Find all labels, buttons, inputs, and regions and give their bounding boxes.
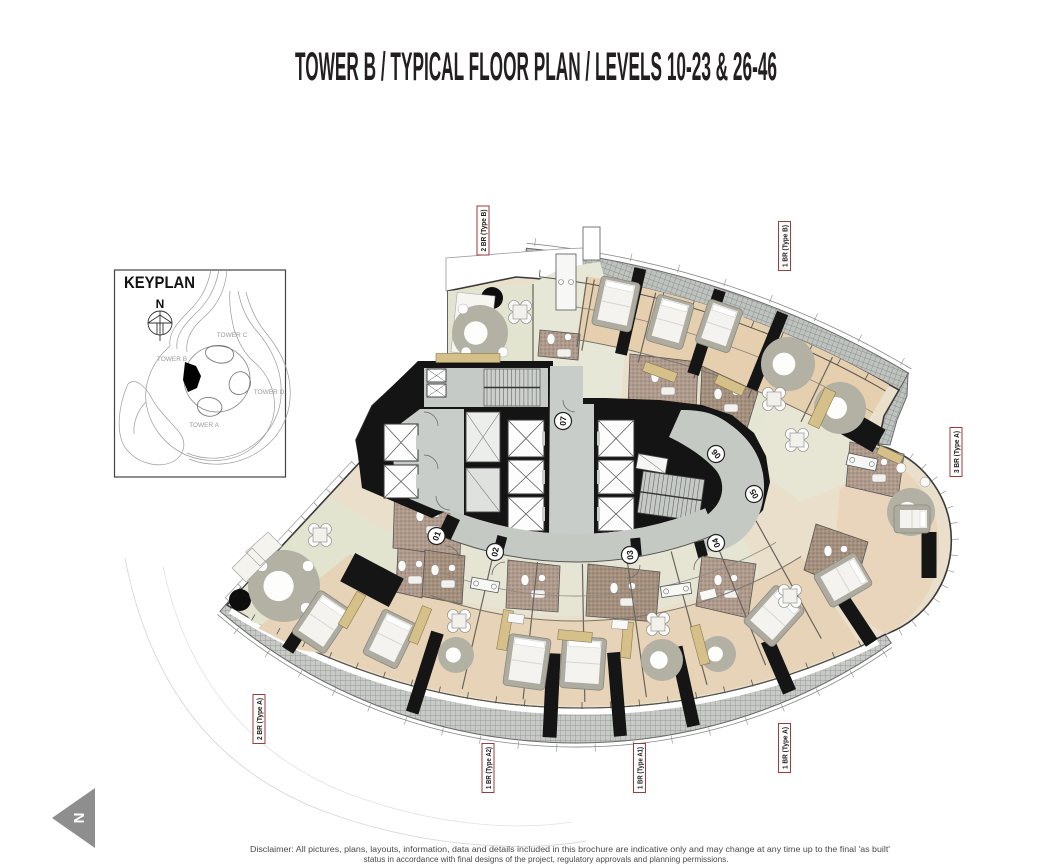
svg-text:Disclaimer: All pictures, plan: Disclaimer: All pictures, plans, layouts…	[250, 845, 891, 854]
svg-text:2 BR (Type B): 2 BR (Type B)	[481, 210, 488, 252]
svg-text:3 BR (Type A): 3 BR (Type A)	[954, 431, 961, 473]
svg-text:1 BR (Type A1): 1 BR (Type A1)	[637, 747, 644, 789]
svg-text:TOWER A: TOWER A	[189, 422, 220, 429]
svg-text:07: 07	[558, 416, 569, 427]
svg-text:KEYPLAN: KEYPLAN	[124, 273, 195, 292]
svg-text:1 BR (Type B): 1 BR (Type B)	[782, 225, 789, 267]
svg-text:1 BR (Type A2): 1 BR (Type A2)	[486, 747, 493, 789]
svg-text:03: 03	[625, 550, 636, 561]
svg-text:1 BR (Type A): 1 BR (Type A)	[782, 727, 789, 769]
svg-text:TOWER B / TYPICAL FLOOR PLAN /: TOWER B / TYPICAL FLOOR PLAN / LEVELS 10…	[295, 45, 777, 89]
svg-text:TOWER D: TOWER D	[254, 389, 285, 396]
svg-text:TOWER B: TOWER B	[157, 356, 187, 363]
svg-text:N: N	[71, 813, 88, 824]
svg-text:2 BR (Type A): 2 BR (Type A)	[257, 698, 264, 740]
svg-text:status in accordance with fina: status in accordance with final designs …	[364, 855, 729, 864]
svg-text:N: N	[156, 297, 165, 311]
svg-text:02: 02	[489, 546, 501, 557]
svg-text:TOWER C: TOWER C	[217, 332, 248, 339]
